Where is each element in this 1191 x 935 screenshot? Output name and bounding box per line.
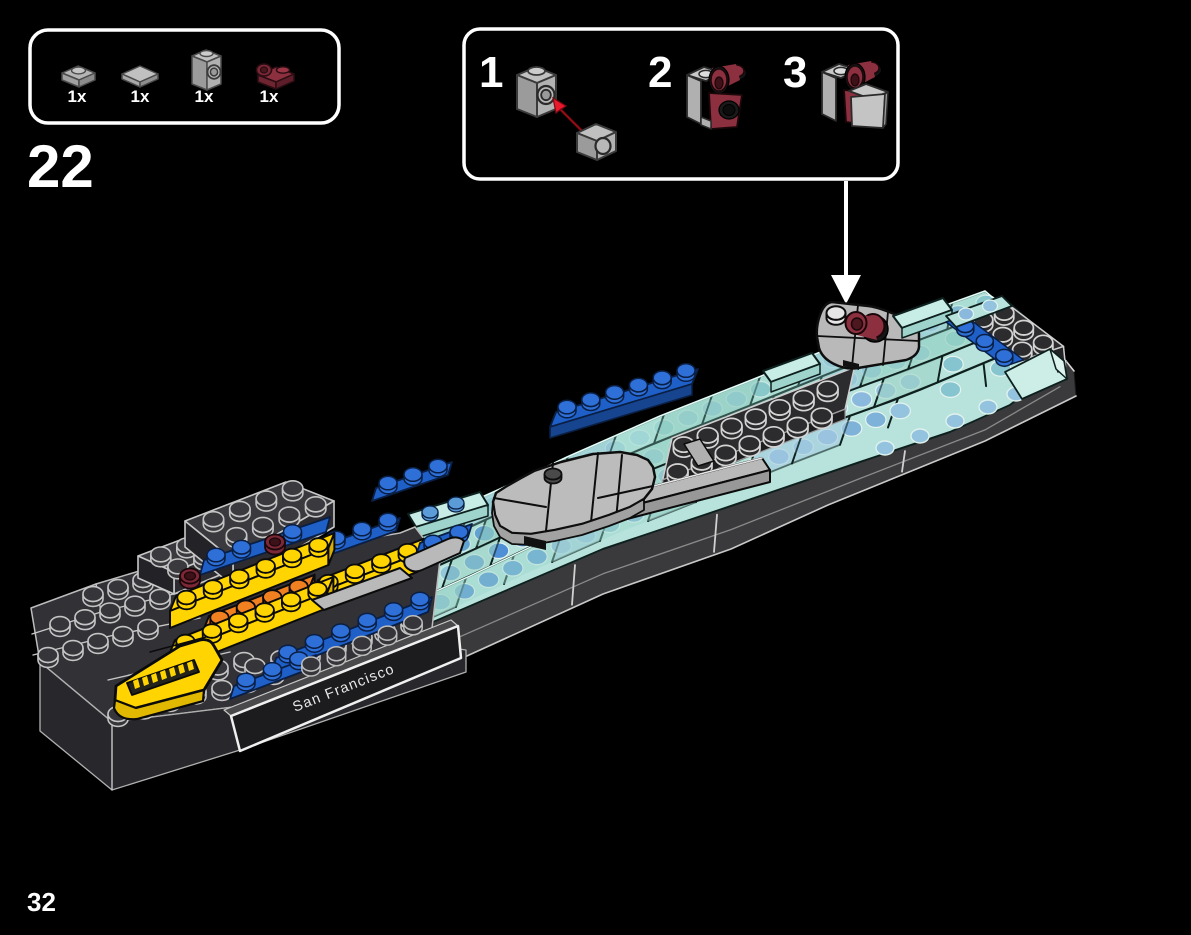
svg-text:3: 3 xyxy=(783,48,807,97)
svg-text:1: 1 xyxy=(479,48,503,97)
svg-text:22: 22 xyxy=(27,133,94,200)
svg-text:32: 32 xyxy=(27,887,56,917)
svg-text:1x: 1x xyxy=(131,87,150,106)
svg-text:1x: 1x xyxy=(260,87,279,106)
svg-text:2: 2 xyxy=(648,48,672,97)
svg-text:1x: 1x xyxy=(68,87,87,106)
svg-text:1x: 1x xyxy=(195,87,214,106)
